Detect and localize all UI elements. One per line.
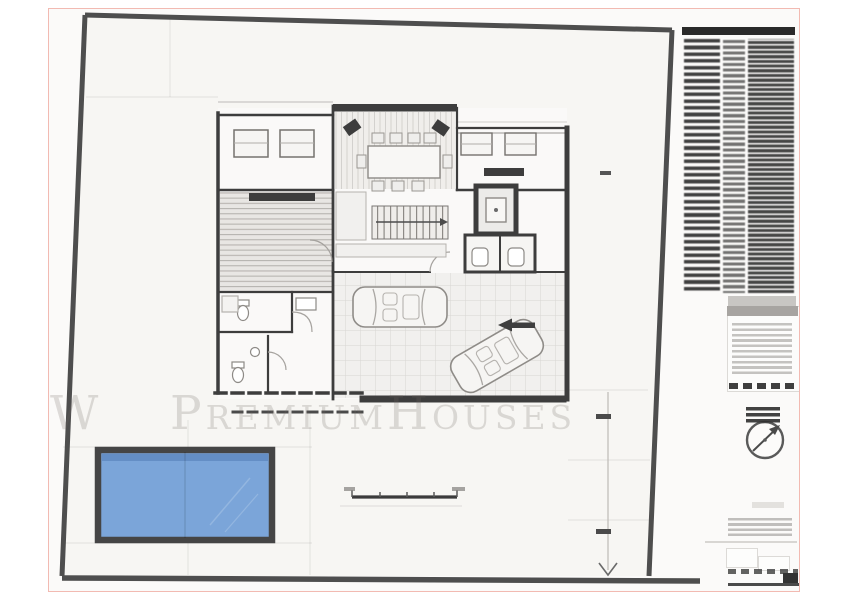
living-room-floor <box>220 192 332 291</box>
tiny-label-mark <box>600 171 611 175</box>
title-block-bar <box>752 502 784 508</box>
drawing-sheet: W PremiumHouses <box>0 0 847 600</box>
title-block-bottom-rule <box>728 583 800 586</box>
compass-caption <box>746 407 780 423</box>
title-block-text <box>728 518 792 538</box>
car-icon <box>353 287 447 327</box>
legend-header-bar <box>682 27 795 35</box>
title-block <box>690 500 800 590</box>
compass-icon <box>747 422 783 458</box>
toilet-icon <box>233 368 244 383</box>
sink-icon <box>296 298 316 310</box>
dining-table <box>368 146 440 178</box>
swimming-pool <box>98 450 272 540</box>
elevator <box>476 186 516 234</box>
toilet-icon <box>238 306 249 321</box>
toilet-icon <box>508 248 524 266</box>
title-block-rule <box>705 541 797 543</box>
stamp-box <box>727 306 800 392</box>
legend-column <box>723 39 745 293</box>
toilet-icon <box>472 248 488 266</box>
house <box>215 102 611 412</box>
stamp-box-dashes <box>729 383 795 389</box>
title-block-field <box>726 548 758 568</box>
sink-icon <box>251 348 260 357</box>
stairs <box>372 206 448 239</box>
bathrooms <box>465 235 535 272</box>
stamp-box-header <box>727 306 798 316</box>
shower-icon <box>222 296 238 312</box>
counter-icon <box>484 168 524 176</box>
legend-column <box>684 39 720 293</box>
legend-footer-bar <box>728 296 796 306</box>
stamp-box-text <box>732 323 792 375</box>
legend-table <box>682 27 795 297</box>
legend-column <box>748 39 794 293</box>
tv-console-icon <box>249 193 315 201</box>
